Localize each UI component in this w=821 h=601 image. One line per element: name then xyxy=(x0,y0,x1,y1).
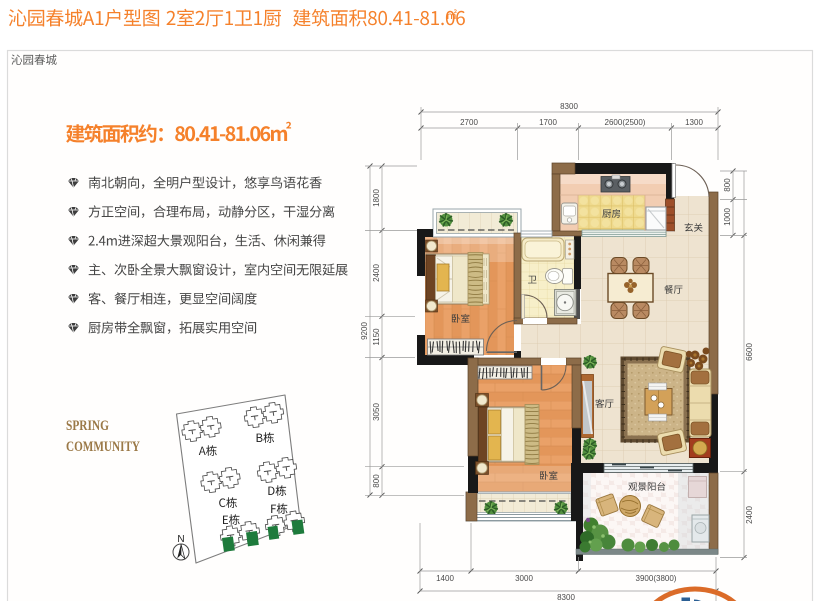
svg-text:1800: 1800 xyxy=(372,189,381,207)
svg-text:6600: 6600 xyxy=(745,343,754,361)
svg-text:2700: 2700 xyxy=(460,118,478,127)
svg-text:3000: 3000 xyxy=(515,574,533,583)
svg-text:2400: 2400 xyxy=(372,264,381,282)
svg-text:3900(3800): 3900(3800) xyxy=(636,574,677,583)
svg-text:3050: 3050 xyxy=(372,403,381,421)
svg-text:N: N xyxy=(177,534,184,545)
svg-text:800: 800 xyxy=(723,178,732,192)
svg-text:8300: 8300 xyxy=(557,593,575,601)
svg-text:SPRING: SPRING xyxy=(66,418,109,434)
svg-text:COMMUNITY: COMMUNITY xyxy=(66,439,140,455)
svg-text:1300: 1300 xyxy=(685,118,703,127)
svg-text:1000: 1000 xyxy=(723,208,732,226)
svg-text:2400: 2400 xyxy=(745,506,754,524)
svg-text:800: 800 xyxy=(372,474,381,488)
svg-text:1700: 1700 xyxy=(539,118,557,127)
svg-text:2600(2500): 2600(2500) xyxy=(605,118,646,127)
svg-text:1400: 1400 xyxy=(436,574,454,583)
svg-text:9200: 9200 xyxy=(360,322,369,340)
svg-text:1150: 1150 xyxy=(372,328,381,346)
svg-text:8300: 8300 xyxy=(560,102,578,111)
